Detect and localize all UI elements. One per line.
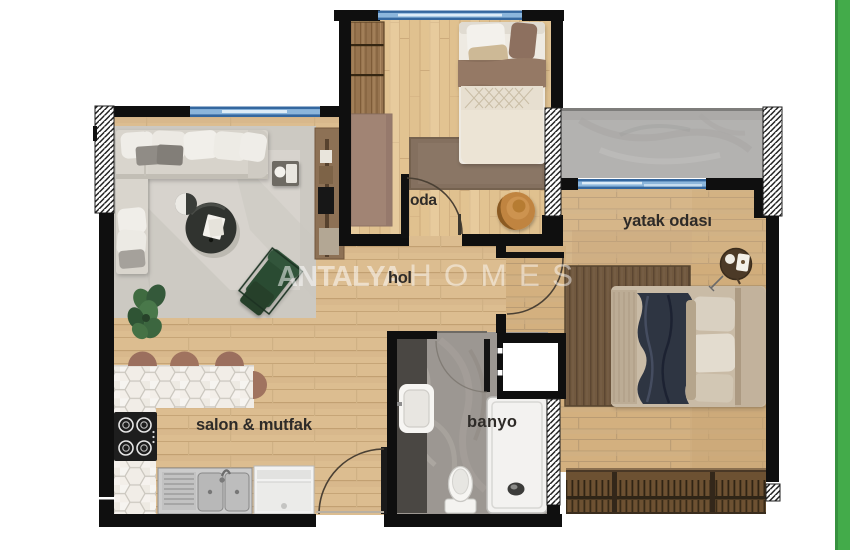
svg-text:ANTALYA: ANTALYA bbox=[277, 261, 403, 293]
svg-text:banyo: banyo bbox=[467, 413, 517, 431]
svg-text:yatak odası: yatak odası bbox=[623, 212, 712, 230]
svg-text:hol: hol bbox=[388, 269, 412, 287]
svg-text:oda: oda bbox=[410, 192, 437, 209]
svg-text:salon & mutfak: salon & mutfak bbox=[196, 416, 313, 434]
